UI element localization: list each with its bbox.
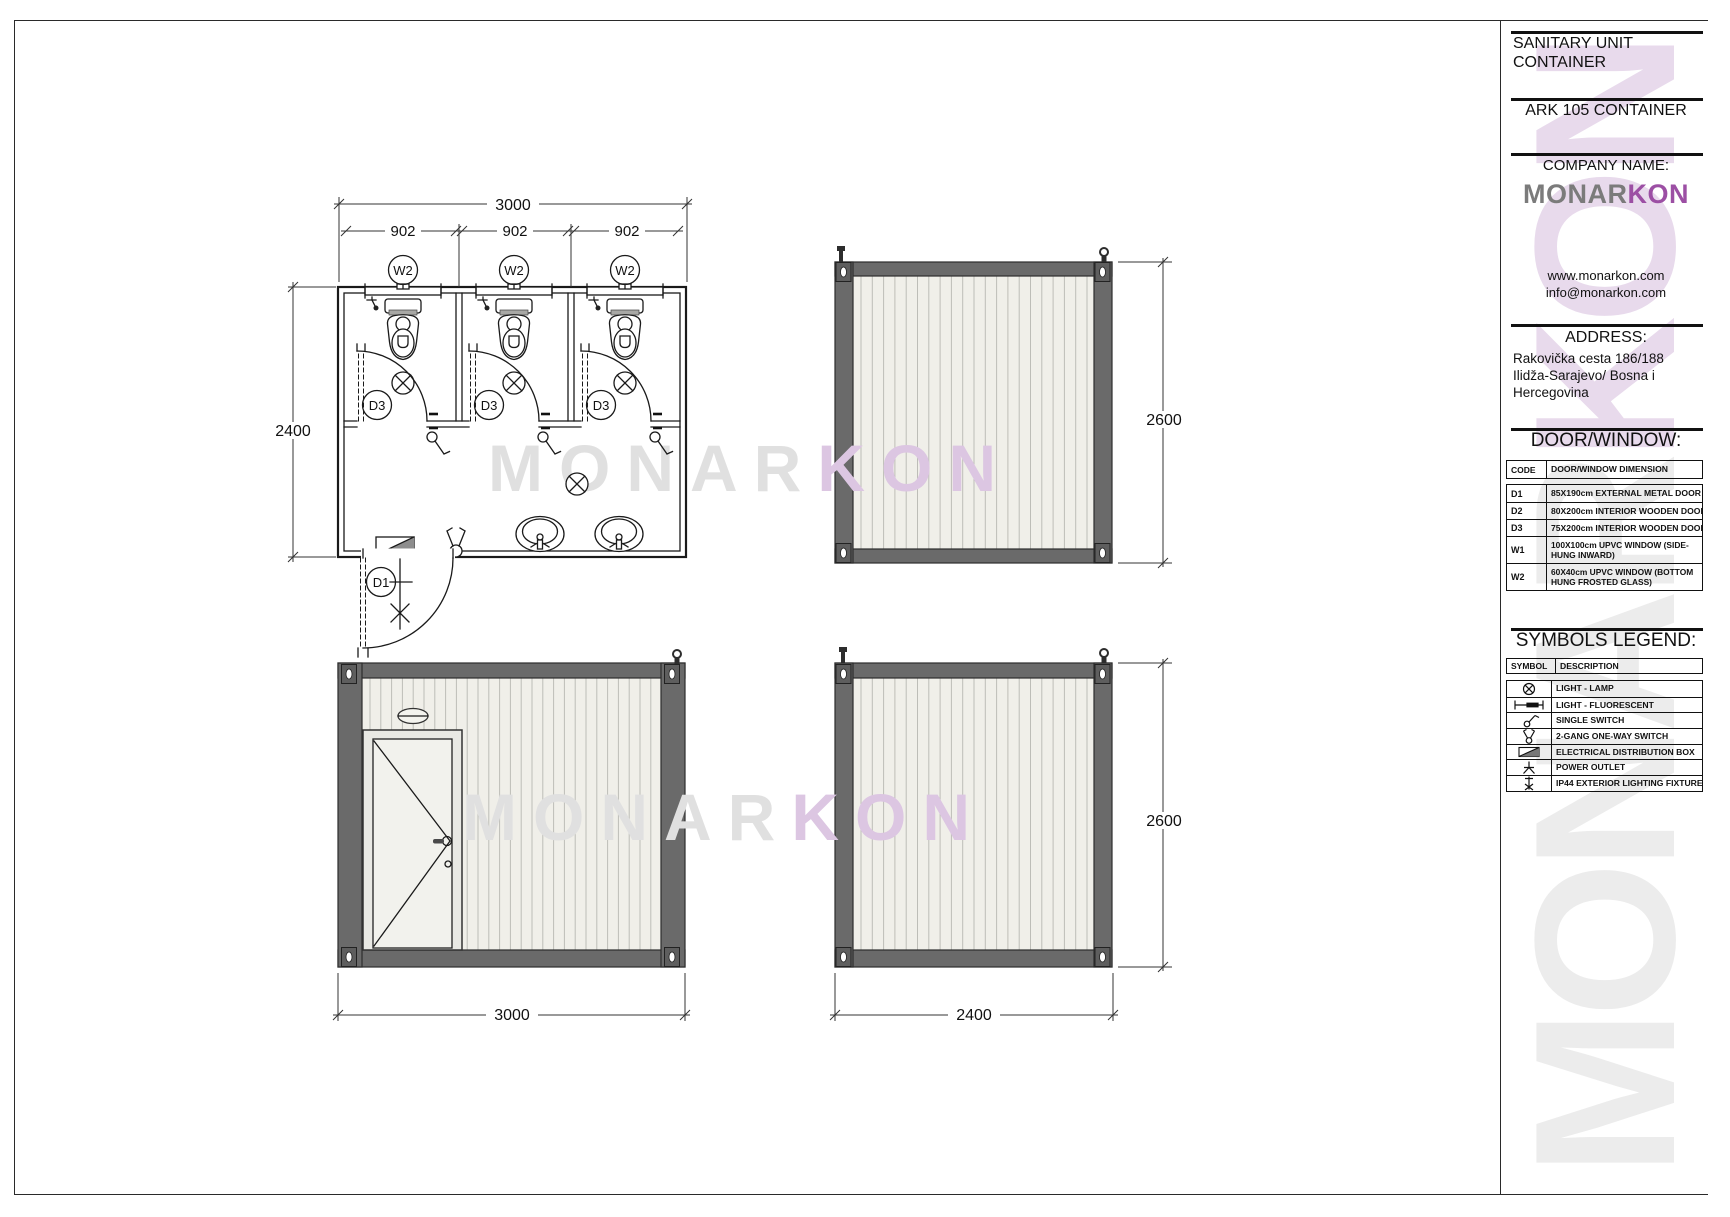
symbols-section-title: SYMBOLS LEGEND: [1501, 630, 1711, 652]
label-d3: D3 [481, 398, 498, 413]
dim-front-width: 3000 [494, 1007, 530, 1024]
symbols-table: LIGHT - LAMP LIGHT - FLUORESCENT SINGLE … [1506, 680, 1703, 792]
door-window-section-title: DOOR/WINDOW: [1501, 430, 1711, 452]
address-line: Rakovička cesta 186/188 [1513, 351, 1664, 368]
project-title: SANITARY UNIT CONTAINER [1513, 34, 1678, 72]
legend-row: POWER OUTLET [1507, 759, 1702, 775]
entry-door-elevation [363, 730, 462, 950]
title-block: MONARKON SANITARY UNIT CONTAINER ARK 105… [1500, 21, 1711, 1194]
table-row: W1 100X100cm UPVC WINDOW (SIDE-HUNG INWA… [1507, 536, 1702, 563]
two-gang-switch-icon [1514, 728, 1544, 744]
product-name: ARK 105 CONTAINER [1501, 102, 1711, 120]
section-divider [1511, 153, 1703, 156]
legend-row: LIGHT - FLUORESCENT [1507, 697, 1702, 713]
legend-row: ELECTRICAL DISTRIBUTION BOX [1507, 744, 1702, 760]
watermarks: MONARKON MONARKON [462, 431, 1012, 854]
address: Rakovička cesta 186/188 Ilidža-Sarajevo/… [1513, 351, 1664, 402]
lifting-lug [839, 647, 847, 663]
fluorescent-light-icon [1512, 698, 1546, 712]
legend-row: IP44 EXTERIOR LIGHTING FIXTURE [1507, 775, 1702, 791]
company-logo: MONARKON [1501, 179, 1711, 210]
dim-rear-height: 2600 [1146, 813, 1182, 830]
lamp-light-symbol [566, 473, 588, 495]
watermark-upper: MONARKON [488, 431, 1012, 505]
lamp-light-symbol [614, 372, 636, 394]
lamp-light-icon [1513, 682, 1545, 696]
address-line: Hercegovina [1513, 385, 1664, 402]
drawing-area: MONARKON MONARKON D3 D3 [0, 0, 1730, 1217]
lifting-lug [673, 650, 681, 664]
company-email: info@monarkon.com [1501, 285, 1711, 300]
company-website: www.monarkon.com [1501, 268, 1711, 283]
wash-basin [516, 517, 564, 552]
label-w2: W2 [615, 263, 635, 278]
lifting-lug [1100, 649, 1108, 663]
legend-row: SINGLE SWITCH [1507, 712, 1702, 728]
label-w2: W2 [504, 263, 524, 278]
label-d1: D1 [373, 575, 390, 590]
dim-stall-width: 902 [502, 223, 527, 240]
side-elevation [835, 246, 1112, 563]
door-window-table-header: CODE DOOR/WINDOW DIMENSION [1506, 460, 1703, 479]
dim-stall-width: 902 [390, 223, 415, 240]
lifting-lug [1100, 248, 1108, 262]
label-d3: D3 [593, 398, 610, 413]
elevations-layer [338, 246, 1112, 967]
dim-plan-depth: 2400 [275, 423, 311, 440]
dim-plan-width: 3000 [495, 197, 531, 214]
address-line: Ilidža-Sarajevo/ Bosna i [1513, 368, 1664, 385]
exterior-light-icon [1514, 775, 1544, 791]
power-outlet-icon [1514, 760, 1544, 775]
window-labels: W2 W2 W2 [389, 256, 640, 289]
table-row: D2 80X200cm INTERIOR WOODEN DOOR [1507, 502, 1702, 519]
label-w2: W2 [393, 263, 413, 278]
door-window-table: D1 85X190cm EXTERNAL METAL DOOR D2 80X20… [1506, 484, 1703, 591]
table-row: D1 85X190cm EXTERNAL METAL DOOR [1507, 485, 1702, 502]
single-switch-icon [1514, 713, 1544, 728]
distribution-box-icon [1514, 745, 1544, 759]
section-divider [1511, 98, 1703, 101]
company-name-label: COMPANY NAME: [1501, 157, 1711, 174]
address-label: ADDRESS: [1501, 329, 1711, 347]
wash-basin [595, 517, 643, 552]
watermark-lower: MONARKON [462, 780, 986, 854]
symbols-table-header: SYMBOL DESCRIPTION [1506, 658, 1703, 674]
label-d3: D3 [369, 398, 386, 413]
legend-row: 2-GANG ONE-WAY SWITCH [1507, 728, 1702, 744]
dim-stall-width: 902 [614, 223, 639, 240]
lifting-lug [837, 246, 845, 262]
table-row: D3 75X200cm INTERIOR WOODEN DOOR [1507, 519, 1702, 536]
exterior-light-symbol [390, 559, 412, 629]
section-divider [1511, 324, 1703, 327]
dim-rear-width: 2400 [956, 1007, 992, 1024]
dim-side-height: 2600 [1146, 412, 1182, 429]
table-row: W2 60X40cm UPVC WINDOW (BOTTOM HUNG FROS… [1507, 563, 1702, 590]
entry-door-plan: D1 [358, 549, 455, 658]
legend-row: LIGHT - LAMP [1507, 681, 1702, 697]
